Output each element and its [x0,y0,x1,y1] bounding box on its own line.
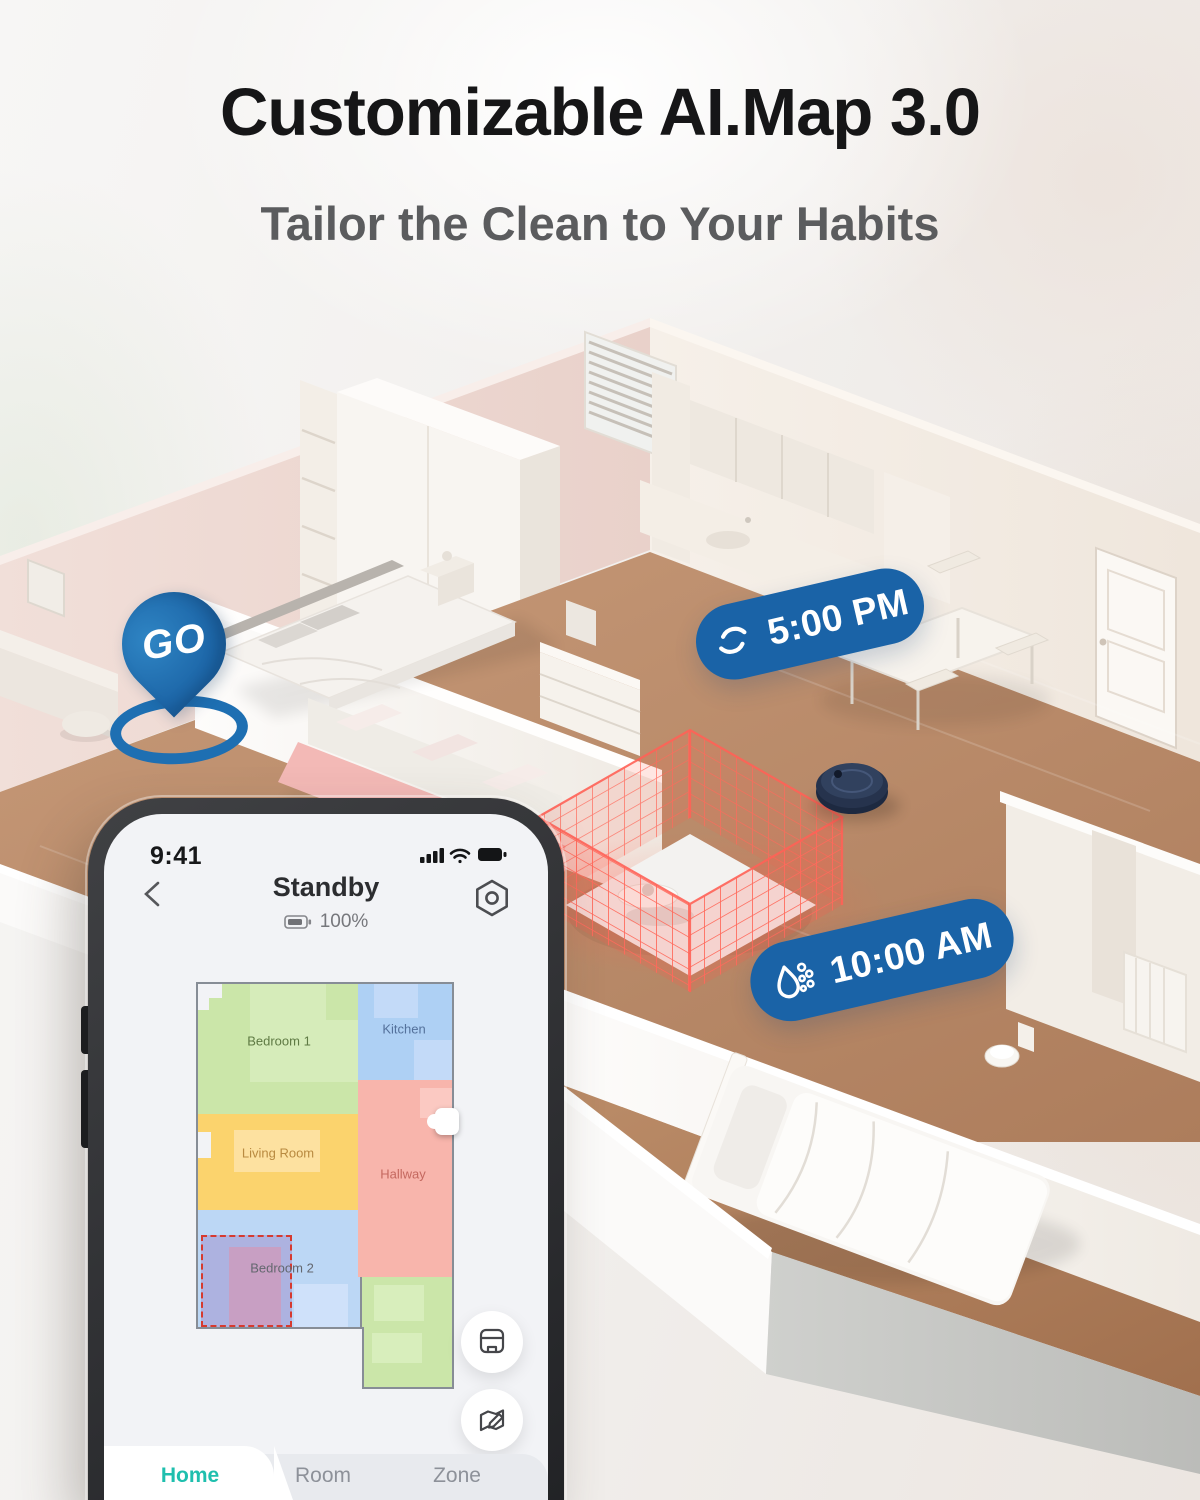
tab-home[interactable]: Home [161,1464,219,1488]
no-go-selection-fill [229,1247,281,1325]
map-room-livingroom[interactable] [198,1114,358,1210]
device-battery-level: 100% [320,911,369,933]
save-map-button[interactable] [461,1311,523,1373]
go-location-pin: GO [116,584,256,759]
edit-map-icon [476,1404,508,1436]
vacuum-time-label: 5:00 PM [764,581,913,654]
map-room-bathroom-ext[interactable] [362,1327,454,1389]
floor-map[interactable]: Bedroom 1 Kitchen Living Room Hallway Be… [196,982,454,1329]
app-screen: 9:41 [104,814,548,1500]
volume-down-button[interactable] [81,1070,88,1148]
room-label-bedroom1[interactable]: Bedroom 1 [247,1034,311,1049]
spin-vacuum-icon [707,615,760,668]
save-map-icon [476,1326,508,1358]
settings-icon [470,876,514,920]
map-canvas[interactable]: Bedroom 1 Kitchen Living Room Hallway Be… [196,982,454,1329]
map-wall-line [360,1277,362,1327]
status-bar-time: 9:41 [150,842,202,871]
tab-room[interactable]: Room [295,1464,351,1488]
dock-station-icon [435,1108,459,1135]
signal-icon [420,848,444,863]
map-room-bathroom-top[interactable] [362,1277,452,1327]
room-label-hallway[interactable]: Hallway [380,1167,426,1182]
device-battery-icon [284,915,312,930]
settings-button[interactable] [470,876,514,920]
door [1096,548,1176,748]
map-room-bedroom1[interactable] [198,984,358,1114]
volume-up-button[interactable] [81,1006,88,1054]
room-label-bedroom2[interactable]: Bedroom 2 [250,1261,314,1276]
smartphone: 9:41 [88,798,564,1500]
tab-zone[interactable]: Zone [433,1464,481,1488]
wifi-icon [451,850,469,863]
battery-icon [478,848,507,861]
edit-map-button[interactable] [461,1389,523,1451]
room-label-kitchen[interactable]: Kitchen [382,1022,425,1037]
page-subtitle: Tailor the Clean to Your Habits [0,196,1200,251]
status-bar-icons [420,844,508,869]
page: Customizable AI.Map 3.0 Tailor the Clean… [0,0,1200,1500]
no-go-selection-box[interactable] [201,1235,292,1327]
room-label-livingroom[interactable]: Living Room [242,1146,314,1161]
page-title: Customizable AI.Map 3.0 [0,74,1200,151]
water-drop-icon [767,953,822,1008]
